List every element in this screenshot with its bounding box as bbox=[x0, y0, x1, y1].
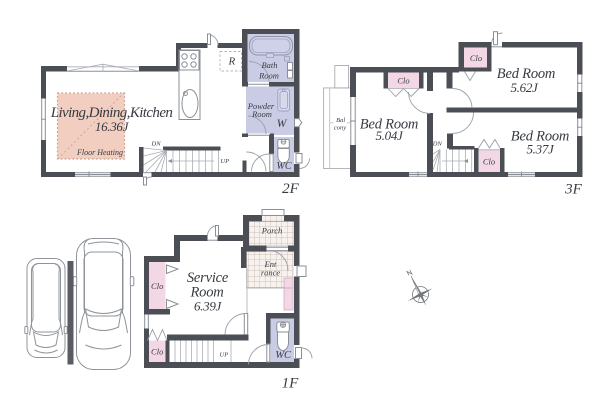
svg-text:5.04J: 5.04J bbox=[375, 128, 404, 143]
svg-text:1F: 1F bbox=[282, 376, 300, 392]
svg-text:Clo: Clo bbox=[470, 53, 482, 63]
svg-text:WC: WC bbox=[275, 350, 292, 361]
svg-text:WC: WC bbox=[277, 161, 292, 172]
svg-text:16.36J: 16.36J bbox=[95, 119, 130, 134]
svg-text:Clo: Clo bbox=[151, 347, 163, 357]
svg-text:Room: Room bbox=[251, 109, 272, 119]
svg-text:Bath: Bath bbox=[261, 60, 277, 70]
svg-text:R: R bbox=[228, 56, 236, 68]
svg-text:6.39J: 6.39J bbox=[194, 299, 223, 314]
svg-text:UP: UP bbox=[221, 158, 230, 165]
svg-text:2F: 2F bbox=[282, 181, 300, 197]
svg-text:W: W bbox=[277, 118, 288, 130]
svg-text:Clo: Clo bbox=[483, 157, 495, 167]
svg-text:Bal: Bal bbox=[336, 117, 345, 124]
svg-text:UP: UP bbox=[220, 352, 229, 359]
svg-text:rance: rance bbox=[261, 268, 281, 278]
svg-text:Porch: Porch bbox=[261, 226, 282, 236]
svg-text:5.62J: 5.62J bbox=[510, 80, 539, 95]
svg-text:DN: DN bbox=[432, 140, 443, 147]
svg-text:DN: DN bbox=[151, 141, 162, 148]
svg-text:Floor Heating: Floor Heating bbox=[76, 148, 123, 157]
svg-text:Room: Room bbox=[258, 71, 279, 81]
svg-text:cony: cony bbox=[334, 124, 346, 131]
svg-text:5.37J: 5.37J bbox=[526, 142, 555, 157]
svg-text:Clo: Clo bbox=[151, 281, 163, 291]
svg-text:Clo: Clo bbox=[397, 76, 409, 86]
svg-text:3F: 3F bbox=[564, 182, 583, 198]
